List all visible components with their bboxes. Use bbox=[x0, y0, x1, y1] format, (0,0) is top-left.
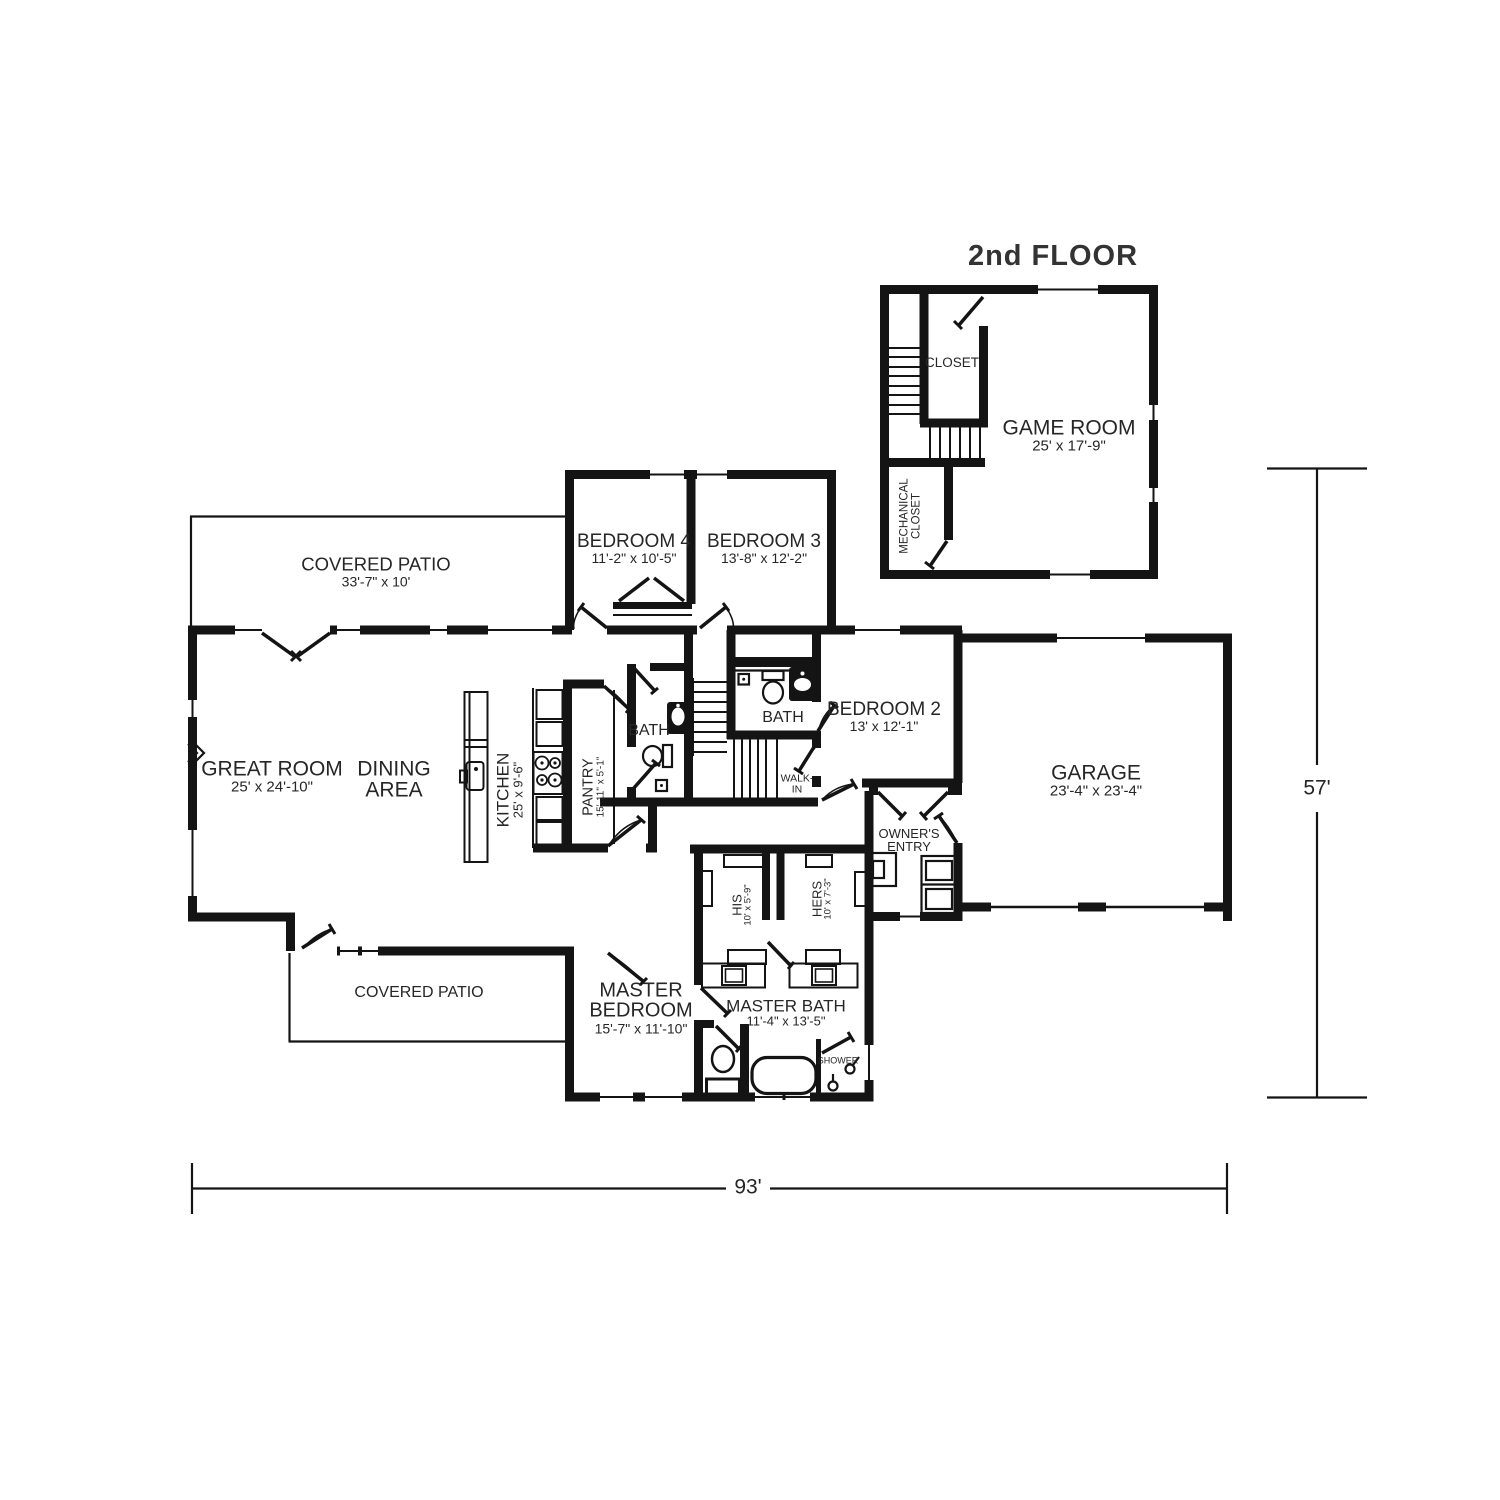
owners-entry-appliances bbox=[869, 853, 957, 913]
owners-entry-label: OWNER'S ENTRY bbox=[879, 827, 940, 854]
master-bedroom-label: MASTER BEDROOM 15'-7" x 11'-10" bbox=[589, 980, 692, 1035]
bedroom3-label: BEDROOM 3 13'-8" x 12'-2" bbox=[707, 532, 821, 566]
bedroom2-label: BEDROOM 2 13' x 12'-1" bbox=[827, 700, 941, 734]
second-floor-title: 2nd FLOOR bbox=[968, 242, 1138, 272]
floor-plan-drawing bbox=[0, 0, 1500, 1500]
kitchen-island bbox=[460, 692, 488, 862]
garage-label: GARAGE 23'-4" x 23'-4" bbox=[1050, 763, 1142, 800]
floor-plan: 2nd FLOOR CLOSET GAME ROOM 25' x 17'-9" … bbox=[0, 0, 1500, 1500]
covered-patio-top-label: COVERED PATIO 33'-7" x 10' bbox=[301, 555, 450, 588]
shower-label: SHOWER bbox=[818, 1056, 859, 1065]
bedroom4-label: BEDROOM 4 11'-2" x 10'-5" bbox=[577, 532, 691, 566]
height-dimension: 57' bbox=[1303, 777, 1330, 798]
dining-area-label: DINING AREA bbox=[357, 759, 431, 802]
bath-label: BATH bbox=[628, 723, 669, 739]
kitchen-fixtures bbox=[533, 688, 563, 848]
his-closet-label: HIS 10' x 5'-9" bbox=[731, 884, 754, 925]
mechanical-closet-label: MECHANICAL CLOSET bbox=[899, 478, 922, 553]
bath2-label: BATH bbox=[762, 710, 803, 726]
walk-in-label: WALK- IN bbox=[781, 773, 814, 794]
great-room-label: GREAT ROOM 25' x 24'-10" bbox=[201, 759, 343, 796]
pantry-label: PANTRY 15'-11" x 5'-1" bbox=[582, 757, 607, 818]
master-bath-label: MASTER BATH 11'-4" x 13'-5" bbox=[726, 998, 846, 1029]
closet-2f-label: CLOSET bbox=[925, 356, 979, 370]
game-room-label: GAME ROOM 25' x 17'-9" bbox=[1002, 418, 1135, 455]
door-tip-ticks bbox=[291, 321, 962, 1052]
door-leaves bbox=[262, 297, 983, 1053]
width-dimension: 93' bbox=[734, 1176, 761, 1197]
covered-patio-bottom-label: COVERED PATIO bbox=[354, 985, 483, 1001]
hers-closet-label: HERS 10' x 7'-3" bbox=[811, 878, 834, 919]
kitchen-label: KITCHEN 25' x 9'-6" bbox=[495, 753, 526, 828]
